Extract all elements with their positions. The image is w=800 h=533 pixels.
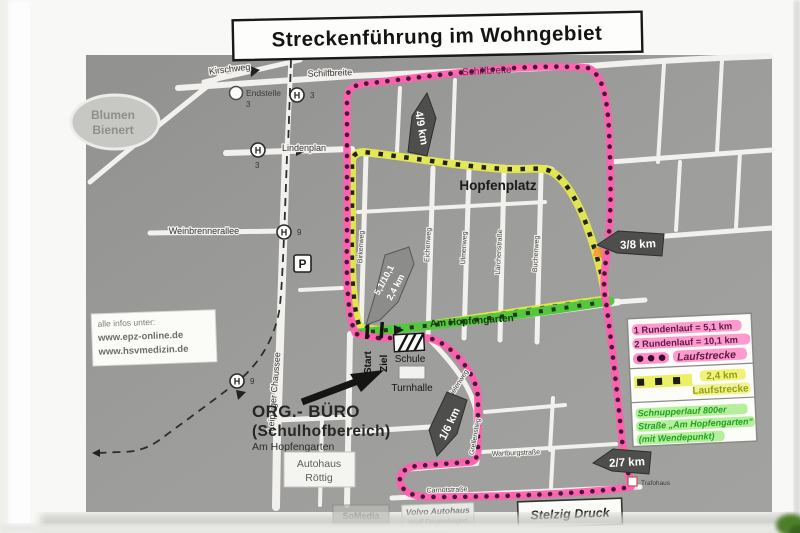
line-number: 9 [250, 377, 255, 386]
parking-letter: P [298, 257, 306, 271]
street-label-lindenplan: Lindenplan [282, 143, 326, 153]
tram-stop-h-leipziger-chaussee: H 9 [230, 374, 255, 388]
street-label-weinbrennerallee: Weinbrennerallee [169, 226, 239, 236]
blumen-bienert-shop: Blumen Bienert [71, 95, 159, 149]
tram-stop-h-icon: H [281, 228, 288, 238]
km-marker-label: 2/7 km [609, 456, 645, 470]
autohaus-line2: Röttig [305, 472, 333, 484]
tram-stop-h-icon: H [255, 146, 262, 156]
legend: 1 Rundenlauf = 5,1 km 2 Rundenlauf = 10,… [627, 313, 757, 446]
trafohaus-label: Trafohaus [641, 480, 671, 487]
km-marker-label: 3/8 km [620, 238, 656, 252]
org-buero-line1: ORG.- BÜRO [252, 402, 360, 421]
tram-stop-h-icon: H [294, 91, 301, 101]
endstelle-label: Endstelle [246, 88, 281, 98]
paper-right-shadow [794, 0, 800, 533]
line-number: 3 [310, 91, 315, 100]
parking-icon: P [294, 255, 311, 272]
title-banner: Streckenführung im Wohngebiet [233, 12, 643, 61]
info-intro: alle infos unter: [97, 317, 155, 329]
street-label-schilfbreite-west: Schilfbreite [307, 67, 352, 79]
line-number: 3 [255, 161, 260, 170]
photo-bottom-edge [0, 524, 800, 533]
turnhalle-building [399, 366, 425, 379]
map-photo-svg: Kirschweg Schilfbreite Schilfbreite Lind… [0, 0, 800, 533]
schule-label: Schule [395, 354, 426, 365]
square-label-hopfenplatz: Hopfenplatz [459, 178, 536, 193]
tram-stop-h-weinbrennerallee: H 9 [277, 225, 302, 239]
tram-stop-h-icon: H [234, 377, 241, 387]
route-junction-mark [593, 247, 604, 258]
endstelle-circle-icon [230, 87, 243, 100]
turnhalle-label: Turnhalle [391, 383, 433, 394]
route-map-photo: Kirschweg Schilfbreite Schilfbreite Lind… [0, 0, 800, 533]
trafohaus-icon [628, 477, 637, 486]
org-buero-line2: (Schulhofbereich) [252, 423, 391, 440]
autohaus-roettig-box: Autohaus Röttig [284, 452, 355, 487]
endstelle-line-number: 3 [246, 100, 251, 109]
schule-building [394, 333, 425, 352]
blumen-line1: Blumen [91, 108, 135, 122]
blumen-line2: Bienert [92, 123, 133, 137]
legend-short-distance: 2,4 km [706, 370, 738, 382]
info-box: alle infos unter: www.epz-online.de www.… [91, 310, 217, 366]
start-label: Start [363, 351, 374, 374]
ziel-label: Ziel [379, 355, 390, 372]
org-buero-line3: Am Hopfengarten [252, 441, 334, 453]
street-label-carnotstrasse: Carnotstraße [426, 486, 467, 494]
tram-stop-h-schilfbreite: H 3 [290, 88, 315, 102]
line-number: 9 [297, 228, 302, 237]
autohaus-line1: Autohaus [297, 458, 341, 470]
